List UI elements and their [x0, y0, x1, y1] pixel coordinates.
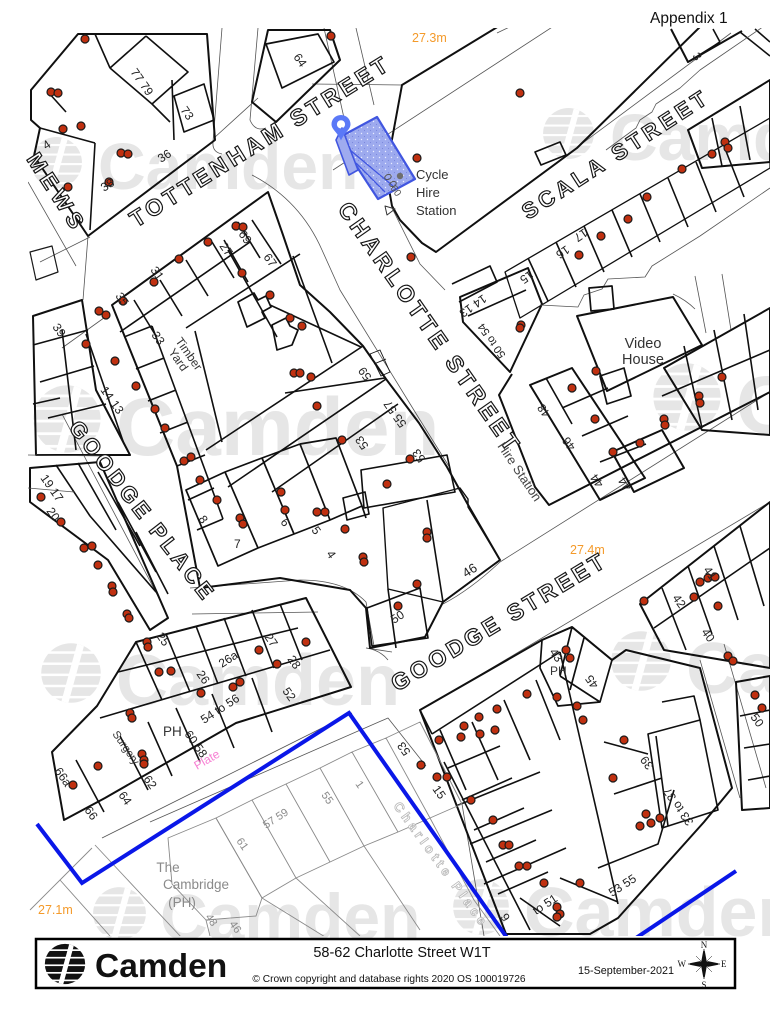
svg-text:27.1m: 27.1m — [38, 903, 73, 917]
svg-text:27.4m: 27.4m — [570, 543, 605, 557]
svg-text:© Crown copyright and database: © Crown copyright and database rights 20… — [252, 974, 525, 985]
svg-text:7: 7 — [234, 537, 241, 551]
svg-text:58-62 Charlotte Street W1T: 58-62 Charlotte Street W1T — [313, 945, 490, 961]
svg-text:27.3m: 27.3m — [412, 31, 447, 45]
svg-text:S: S — [701, 980, 706, 990]
svg-text:The: The — [156, 860, 179, 875]
svg-text:House: House — [622, 352, 664, 368]
svg-text:E: E — [721, 959, 727, 969]
svg-text:PH: PH — [163, 724, 182, 739]
svg-text:Appendix 1: Appendix 1 — [650, 10, 728, 27]
svg-text:Camden: Camden — [95, 948, 227, 985]
svg-text:Video: Video — [625, 336, 662, 352]
svg-text:(PH): (PH) — [168, 895, 196, 910]
svg-text:N: N — [701, 940, 708, 950]
svg-text:Cambridge: Cambridge — [163, 877, 229, 892]
svg-text:Cycle: Cycle — [416, 167, 449, 182]
svg-text:Hire: Hire — [416, 185, 440, 200]
svg-text:PH: PH — [550, 664, 567, 678]
svg-text:15-September-2021: 15-September-2021 — [578, 965, 674, 977]
svg-text:Station: Station — [416, 203, 456, 218]
svg-text:W: W — [678, 959, 687, 969]
